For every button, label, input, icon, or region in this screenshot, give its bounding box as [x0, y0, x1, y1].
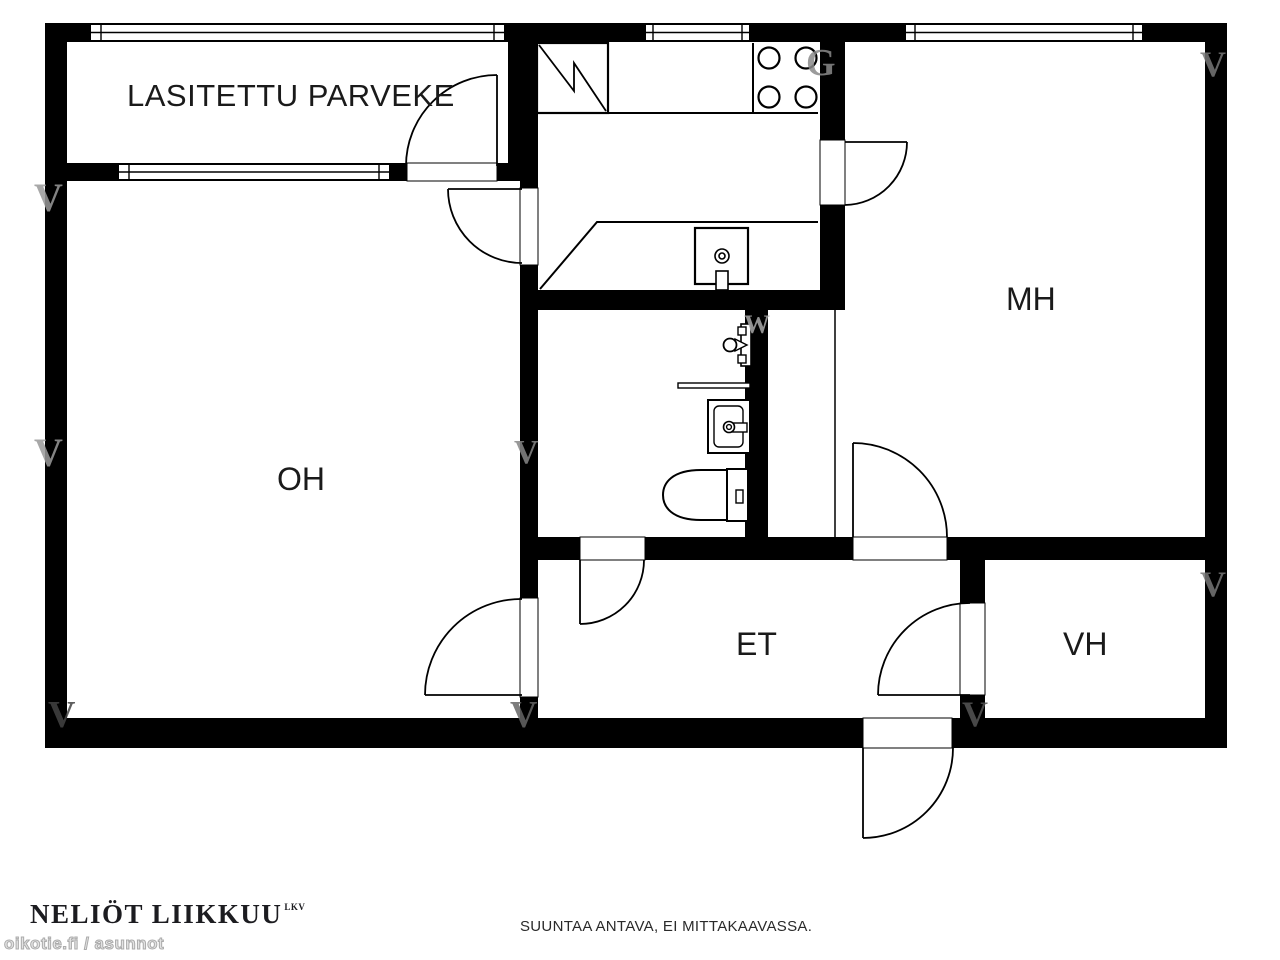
watermark-letter: V — [34, 178, 63, 218]
door-living-entry — [425, 599, 522, 695]
door-kitchen-living — [448, 189, 522, 263]
room-label-closet: VH — [1063, 628, 1107, 660]
watermark-letter: G — [806, 44, 836, 82]
watermark-letter: W — [744, 312, 770, 338]
kitchen-sink-icon — [695, 228, 748, 290]
door-frame-kitchen-bedroom — [820, 140, 845, 205]
door-frame-closet — [960, 603, 985, 695]
door-frame-bedroom-entry — [853, 537, 947, 560]
wall-balcony-bottom-a — [67, 163, 118, 181]
bathroom-fixtures — [663, 324, 751, 521]
site-watermark: oikotie.fi / asunnot — [4, 934, 164, 954]
floorplan-drawing — [0, 0, 1280, 960]
fridge-icon — [537, 43, 608, 113]
watermark-letter: V — [48, 696, 75, 734]
wall-right — [1205, 23, 1227, 748]
door-kitchen-bedroom — [845, 142, 907, 205]
toilet-icon — [663, 469, 748, 521]
door-bedroom-entry — [853, 443, 947, 537]
room-label-living-room: OH — [277, 463, 325, 495]
wall-balcony-bottom-b — [390, 163, 407, 181]
door-frame-balcony — [407, 163, 497, 181]
room-label-entry-hall: ET — [736, 628, 777, 660]
door-entrance — [863, 748, 953, 838]
door-bathroom — [580, 560, 644, 624]
bathroom-sink-icon — [708, 400, 750, 453]
door-frame-bathroom — [580, 537, 645, 560]
watermark-letter: V — [1200, 566, 1226, 602]
watermark-letter: V — [510, 696, 537, 734]
window-balcony-top — [90, 24, 505, 41]
kitchen-fixtures — [537, 43, 818, 290]
door-frame-living-entry — [520, 598, 538, 697]
door-closet — [878, 603, 970, 695]
counter-edge-bottom — [540, 222, 818, 289]
watermark-letter: V — [34, 433, 63, 473]
brand-lkv-suffix: LKV — [284, 902, 305, 912]
shelf-icon — [678, 383, 750, 388]
window-balcony-living — [118, 164, 390, 180]
wall-bottom-right — [952, 718, 1227, 748]
disclaimer-text: SUUNTAA ANTAVA, EI MITTAKAAVASSA. — [520, 918, 812, 935]
wall-balcony-right — [508, 23, 538, 181]
wall-kitchen-bottom — [538, 290, 845, 310]
watermark-letter: V — [1200, 46, 1226, 82]
floorplan: LASITETTU PARVEKE OH MH ET VH V V V V G … — [0, 0, 1280, 960]
wall-et-top-c — [947, 537, 1205, 560]
brand-logo: NELIÖT LIIKKUULKV — [30, 901, 303, 928]
window-kitchen — [645, 24, 750, 41]
watermark-letter: V — [962, 696, 988, 732]
room-label-bedroom: MH — [1006, 283, 1056, 315]
wall-oh-right-b — [520, 265, 538, 598]
door-frame-entrance — [863, 718, 952, 748]
room-label-balcony: LASITETTU PARVEKE — [127, 80, 455, 111]
wall-left — [45, 23, 67, 748]
door-frame-kitchen-living — [520, 188, 538, 265]
wall-vh-left-a — [960, 560, 985, 603]
brand-name: NELIÖT LIIKKUU — [30, 899, 282, 929]
wall-bottom-left — [45, 718, 863, 748]
wall-et-top-b — [645, 537, 853, 560]
wall-et-top-a — [538, 537, 580, 560]
window-bedroom — [905, 24, 1143, 41]
watermark-letter: V — [514, 436, 539, 470]
